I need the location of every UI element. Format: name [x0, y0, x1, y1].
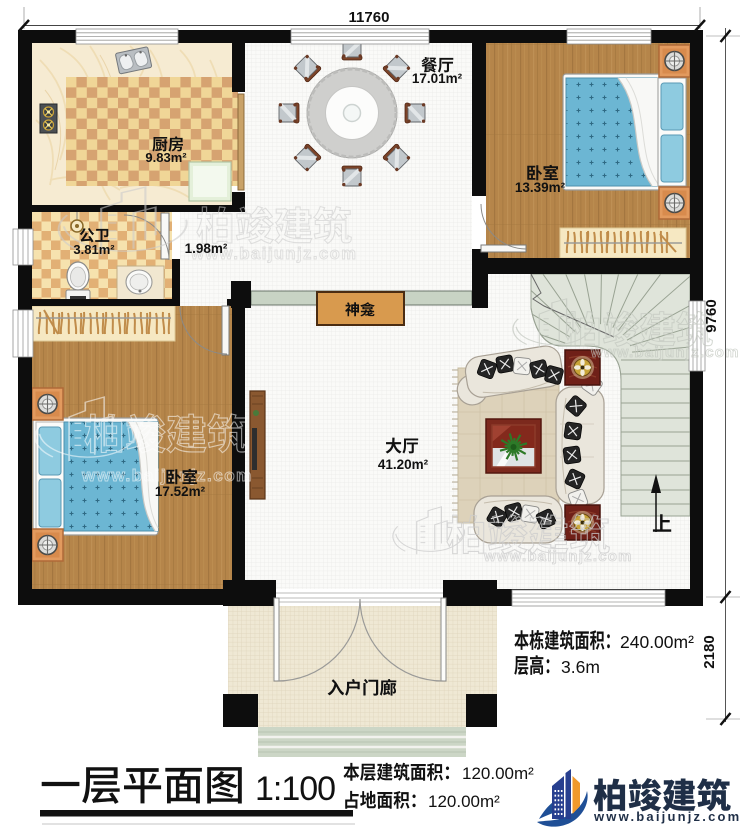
svg-text:9.83m²: 9.83m² — [145, 150, 187, 165]
svg-text:www.baijunjz.com: www.baijunjz.com — [593, 809, 741, 824]
svg-text:3.6m: 3.6m — [561, 657, 600, 677]
svg-text:17.52m²: 17.52m² — [155, 484, 206, 499]
svg-text:120.00m²: 120.00m² — [428, 792, 500, 811]
svg-text:1:100: 1:100 — [255, 770, 335, 808]
svg-text:17.01m²: 17.01m² — [412, 71, 463, 86]
svg-text:41.20m²: 41.20m² — [378, 457, 429, 472]
svg-text:120.00m²: 120.00m² — [462, 764, 534, 783]
svg-text:1.98m²: 1.98m² — [185, 241, 228, 256]
svg-text:9760: 9760 — [703, 299, 720, 332]
svg-text:www.baijunjz.com: www.baijunjz.com — [590, 344, 740, 361]
svg-text:13.39m²: 13.39m² — [515, 180, 566, 195]
svg-text:11760: 11760 — [349, 9, 390, 26]
svg-text:240.00m²: 240.00m² — [620, 632, 694, 652]
svg-text:www.baijunjz.com: www.baijunjz.com — [483, 548, 633, 565]
svg-text:2180: 2180 — [701, 635, 718, 668]
svg-text:3.81m²: 3.81m² — [73, 242, 115, 257]
